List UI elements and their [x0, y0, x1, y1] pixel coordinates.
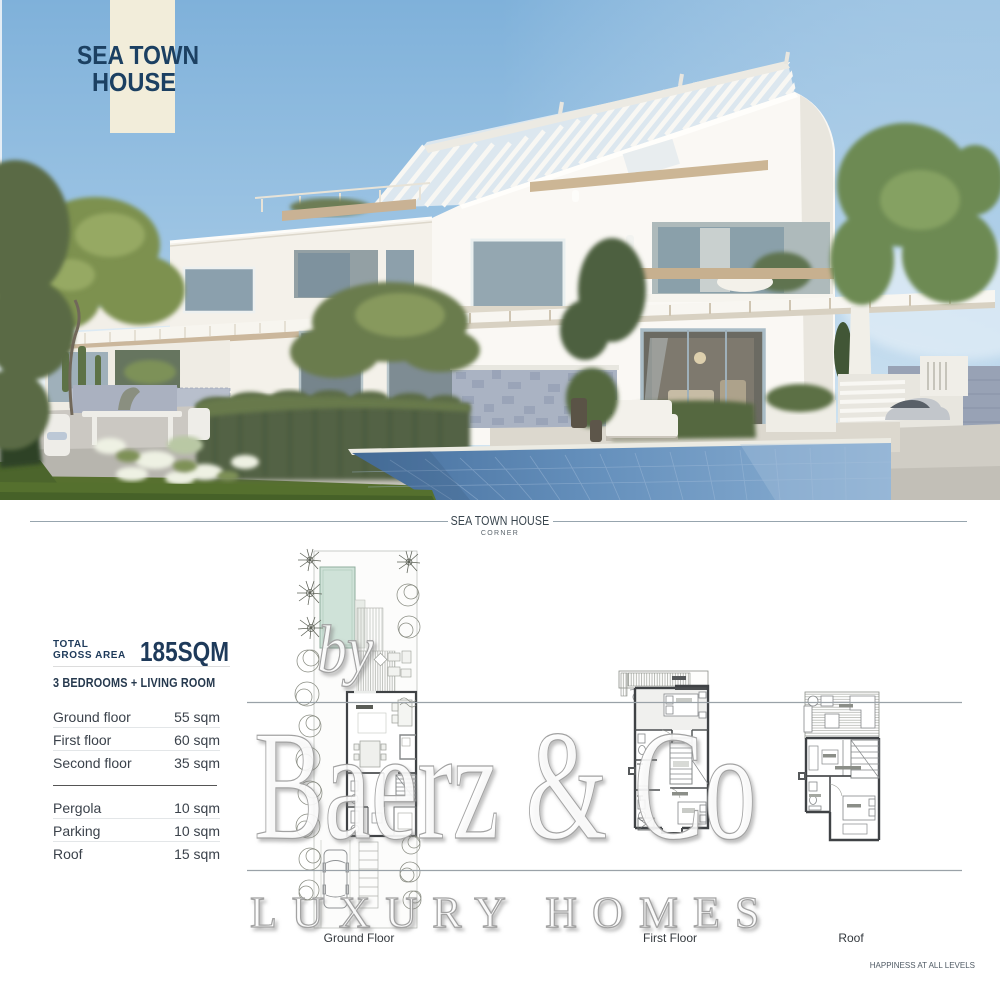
svg-text:HOUSE: HOUSE — [92, 67, 176, 97]
svg-text:SEA TOWN: SEA TOWN — [77, 40, 199, 70]
